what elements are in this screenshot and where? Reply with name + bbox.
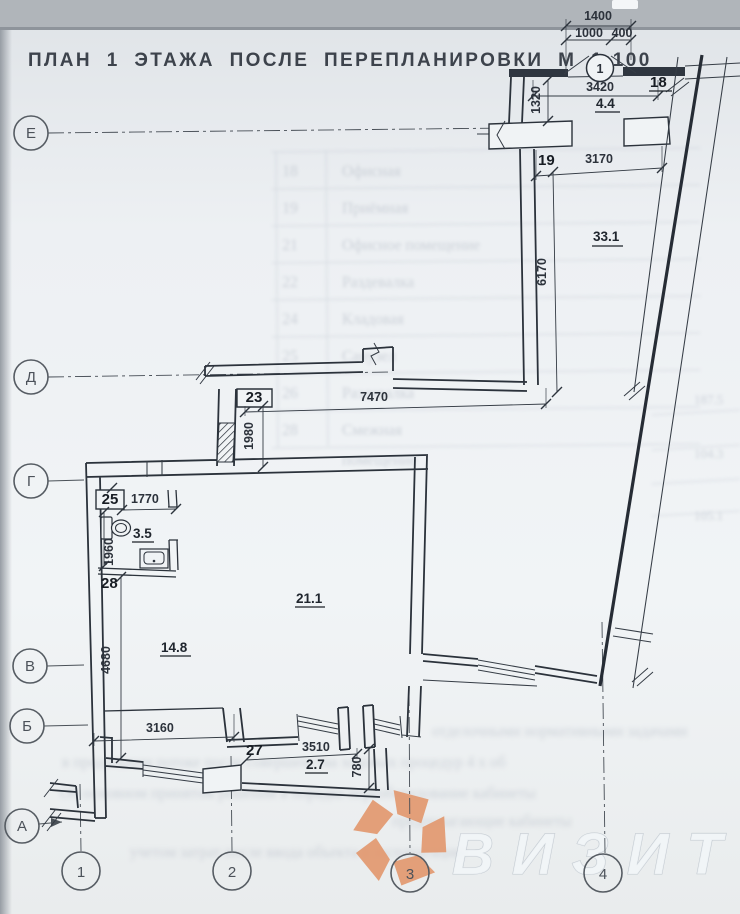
ghost-row-name: Приёмная — [342, 200, 408, 217]
ghost-row-name: Смежная — [342, 422, 402, 439]
room-25-number: 25 — [102, 491, 119, 508]
room-27-number: 27 — [246, 742, 263, 759]
ghost-row-name: помещение — [342, 452, 417, 469]
room-28-number: 28 — [101, 575, 118, 592]
dim-780: 780 — [350, 757, 364, 778]
axis-label-A: А — [17, 818, 27, 835]
dim-6170: 6170 — [535, 258, 549, 286]
dim-1980: 1980 — [242, 422, 256, 450]
room-19-number: 19 — [538, 152, 555, 169]
dim-3160: 3160 — [146, 721, 174, 735]
ghost-row-no: 24 — [282, 311, 298, 328]
ghost-row-name: Офисная — [342, 163, 401, 180]
ghost-row-no: 28 — [282, 422, 298, 439]
hatched-infill-wall — [217, 423, 235, 462]
dim-3420: 3420 — [586, 80, 614, 94]
dim-1320: 1320 — [529, 86, 543, 114]
wall-block-e-right — [624, 117, 670, 146]
ghost-figure: 105.1 — [694, 508, 723, 523]
plan-title: ПЛАН 1 ЭТАЖА ПОСЛЕ ПЕРЕПЛАНИРОВКИ М 1:10… — [28, 50, 652, 71]
room-23-number: 23 — [246, 389, 263, 406]
axis-label-2: 2 — [228, 864, 236, 881]
room-19-area: 33.1 — [593, 229, 620, 244]
axis-label-B: Б — [22, 718, 32, 735]
room-18-area: 4.4 — [596, 96, 615, 111]
sink-icon — [140, 549, 168, 568]
wall-block-e-left — [489, 121, 572, 149]
floor-plan-svg: 18 Офисная 19 Приёмная 21 Офисное помеще… — [0, 0, 740, 914]
dim-1770: 1770 — [131, 492, 159, 506]
left-room-area: 14.8 — [161, 640, 188, 655]
axis-label-E: Е — [26, 125, 36, 142]
ghost-row-no: 22 — [282, 274, 298, 291]
ghost-row-name: Кладовая — [342, 311, 404, 328]
page-left-edge-shadow — [0, 30, 12, 914]
axis-label-4: 4 — [599, 866, 607, 883]
dim-1400: 1400 — [584, 9, 612, 23]
ghost-row-no: 18 — [282, 163, 298, 180]
dim-400: 400 — [612, 26, 633, 40]
wc-area: 3.5 — [133, 526, 152, 541]
ghost-row-name: Раздевалка — [342, 274, 414, 291]
dim-7470: 7470 — [360, 390, 388, 404]
axis-label-3: 3 — [406, 866, 414, 883]
ghost-row-name: Офисное помещение — [342, 237, 480, 254]
room-18-number: 18 — [650, 74, 667, 91]
ghost-figure: 187.5 — [694, 392, 723, 407]
axis-label-D: Д — [26, 369, 36, 386]
dim-3510: 3510 — [302, 740, 330, 754]
ghost-figure: 104.3 — [694, 446, 723, 461]
callout-number: 1 — [597, 62, 604, 76]
dim-4680: 4680 — [99, 646, 113, 674]
page-tab-notch — [612, 0, 638, 9]
ghost-row-no: 19 — [282, 200, 298, 217]
ghost-row-no: 26 — [282, 385, 298, 402]
loggia-area: 2.7 — [306, 757, 325, 772]
loggia-left-pier — [203, 765, 241, 793]
main-room-area: 21.1 — [296, 591, 323, 606]
dim-3170: 3170 — [585, 152, 613, 166]
ghost-line: отделочными нормативными задачами — [432, 723, 687, 740]
dim-1000: 1000 — [575, 26, 603, 40]
scanned-floor-plan-page: 18 Офисная 19 Приёмная 21 Офисное помеще… — [0, 0, 740, 914]
ghost-row-no: 25 — [282, 348, 298, 365]
ghost-row-no: 21 — [282, 237, 298, 254]
axis-label-1: 1 — [77, 864, 85, 881]
dim-1960: 1960 — [102, 538, 116, 566]
axis-label-V: В — [25, 658, 35, 675]
axis-label-G: Г — [27, 473, 35, 490]
